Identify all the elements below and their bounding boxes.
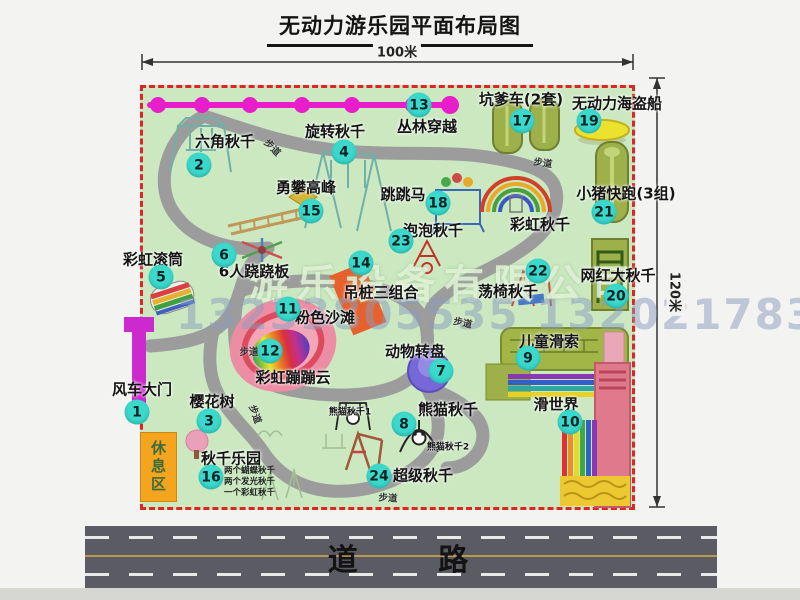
attraction-label-4: 旋转秋千 — [305, 121, 365, 142]
attraction-badge-3: 3 — [197, 409, 222, 434]
extra-label-1: 熊猫秋千1 — [329, 405, 371, 418]
attraction-badge-11: 11 — [276, 297, 301, 322]
walkway-label-4: 步道 — [452, 313, 474, 331]
extra-label-0: 彩虹秋千 — [510, 214, 570, 235]
attraction-badge-16: 16 — [199, 465, 224, 490]
attraction-badge-10: 10 — [558, 410, 583, 435]
attraction-badge-8: 8 — [392, 412, 417, 437]
attraction-label-1: 风车大门 — [112, 379, 172, 400]
attraction-badge-18: 18 — [426, 191, 451, 216]
attraction-label-8: 熊猫秋千 — [418, 399, 478, 420]
attraction-label-17: 坑爹车(2套) — [479, 89, 563, 110]
attraction-badge-13: 13 — [407, 93, 432, 118]
attraction-label-18: 跳跳马 — [380, 184, 425, 205]
attraction-badge-21: 21 — [592, 200, 617, 225]
attraction-label-22: 荡椅秋千 — [478, 281, 538, 302]
width-dimension-label: 100米 — [373, 42, 421, 61]
park-layout-image: 无动力游乐园平面布局图 — [0, 0, 800, 600]
attraction-label-2: 六角秋千 — [195, 131, 255, 152]
attraction-label-15: 勇攀高峰 — [276, 177, 336, 198]
attraction-label-11: 粉色沙滩 — [295, 307, 355, 328]
walkway-label-5: 步道 — [378, 489, 398, 504]
attraction-badge-14: 14 — [349, 251, 374, 276]
attraction-badge-6: 6 — [212, 243, 237, 268]
walkway-label-2: 步道 — [239, 344, 258, 358]
attraction-label-24: 超级秋千 — [393, 465, 453, 486]
attraction-badge-15: 15 — [299, 199, 324, 224]
attraction-badge-24: 24 — [367, 464, 392, 489]
attraction-label-14: 吊桩三组合 — [343, 282, 418, 303]
attraction-badge-4: 4 — [332, 140, 357, 165]
attraction-label-20: 网红大秋千 — [580, 265, 655, 286]
attraction-badge-2: 2 — [187, 153, 212, 178]
attraction-badge-17: 17 — [510, 109, 535, 134]
attraction-badge-22: 22 — [526, 259, 551, 284]
attraction-badge-20: 20 — [604, 284, 629, 309]
walkway-label-1: 步道 — [533, 154, 554, 171]
attraction-sub-labels-16: 两个蝴蝶秋千两个发光秋千一个彩虹秋千 — [224, 466, 275, 499]
attraction-badge-19: 19 — [577, 109, 602, 134]
walkway-label-3: 步道 — [246, 403, 266, 426]
attraction-label-13: 丛林穿越 — [397, 116, 457, 137]
attraction-badge-23: 23 — [389, 229, 414, 254]
walkway-label-0: 步道 — [261, 135, 284, 158]
attraction-label-21: 小猪快跑(3组) — [576, 183, 675, 204]
attraction-badge-1: 1 — [125, 400, 150, 425]
attraction-label-12: 彩虹蹦蹦云 — [255, 367, 330, 388]
attraction-badge-9: 9 — [516, 346, 541, 371]
attraction-badge-7: 7 — [429, 359, 454, 384]
attraction-badge-12: 12 — [258, 339, 283, 364]
extra-label-2: 熊猫秋千2 — [427, 440, 469, 453]
height-dimension-label: 120米 — [667, 268, 686, 316]
attraction-badge-5: 5 — [149, 265, 174, 290]
